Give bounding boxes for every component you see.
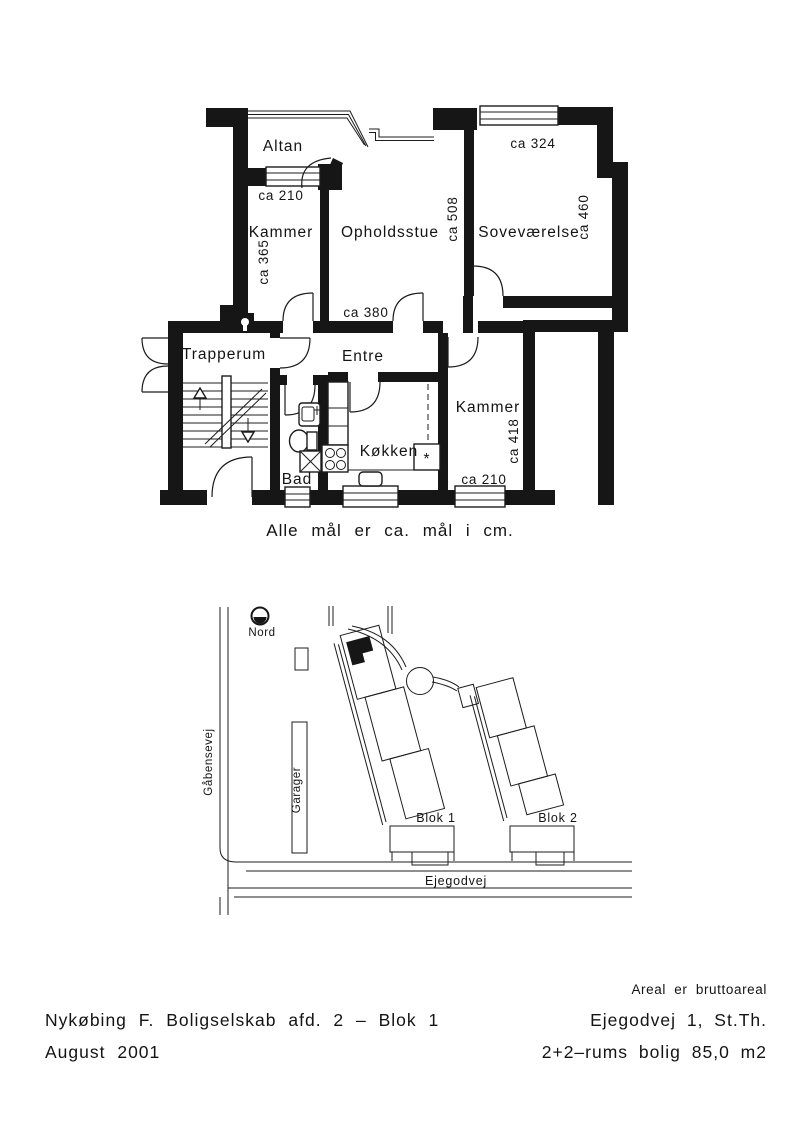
drawing-date: August 2001 <box>45 1042 160 1063</box>
dim-opholdsstue-width: ca 380 <box>343 305 388 320</box>
dim-sovevaerelse-depth: ca 460 <box>576 194 591 239</box>
dim-kammer-lower-depth: ca 418 <box>506 418 521 463</box>
room-label-entre: Entre <box>342 348 384 365</box>
window-kammer-lower <box>455 486 505 507</box>
dim-sovevaerelse-width: ca 324 <box>510 136 555 151</box>
dim-kammer-upper-depth: ca 365 <box>256 239 271 284</box>
garages-label: Garager <box>291 767 303 813</box>
toilet-icon <box>290 430 318 452</box>
room-label-koekken: Køkken <box>360 443 419 460</box>
blok2-building <box>458 670 564 824</box>
door-apartment-entrance <box>280 338 310 368</box>
site-plan: Nord Gåbensevej Garager Blok 1 Blok 2 Ej… <box>203 606 632 915</box>
kitchen-fixtures: * <box>322 382 440 486</box>
door-neighbour-flat <box>142 338 168 392</box>
blok1-annex <box>295 648 308 670</box>
room-label-opholdsstue: Opholdsstue <box>341 224 439 241</box>
blok1-wing <box>390 826 454 852</box>
street-label-west: Gåbensevej <box>203 728 215 795</box>
blok1-porch <box>412 852 448 865</box>
room-label-sovevaerelse: Soveværelse <box>478 224 579 241</box>
kitchen-sink-icon <box>359 472 382 486</box>
stove-icon <box>322 445 348 472</box>
door-building-entrance <box>212 457 252 497</box>
door-sovevaerelse <box>473 266 503 296</box>
room-label-altan: Altan <box>263 138 303 155</box>
plan-graphics: * Altan Kammer Opholdsstue Soveværelse T… <box>0 0 800 1131</box>
drawing-sheet: * Altan Kammer Opholdsstue Soveværelse T… <box>0 0 800 1131</box>
blok1-label: Blok 1 <box>416 811 456 825</box>
sink-icon <box>299 403 320 426</box>
door-kammer-lower <box>448 337 478 367</box>
apartment-type: 2+2–rums bolig 85,0 m2 <box>542 1042 767 1063</box>
roads <box>220 607 632 915</box>
address-line: Ejegodvej 1, St.Th. <box>590 1010 767 1031</box>
apartment-location-marker <box>346 636 375 665</box>
project-title: Nykøbing F. Boligselskab afd. 2 – Blok 1 <box>45 1010 439 1031</box>
window-koekken <box>343 486 398 507</box>
window-altan-kammer <box>266 167 320 186</box>
floor-plan: * Altan Kammer Opholdsstue Soveværelse T… <box>142 106 628 507</box>
blok2-label: Blok 2 <box>538 811 578 825</box>
room-label-trapperum: Trapperum <box>182 346 266 363</box>
compass-label: Nord <box>248 627 275 639</box>
stairs-icon <box>183 376 268 448</box>
door-kammer-upper <box>283 293 313 321</box>
window-bad <box>285 487 310 507</box>
stair-down-arrow <box>242 418 254 442</box>
blok2-porch <box>536 852 564 865</box>
door-koekken <box>350 382 380 412</box>
blok2-wing <box>510 826 574 852</box>
measurement-note: Alle mål er ca. mål i cm. <box>190 521 590 541</box>
fridge-symbol: * <box>423 451 430 468</box>
bathroom-fixtures <box>290 403 322 472</box>
street-label-south: Ejegodvej <box>425 874 487 888</box>
nord-compass-icon <box>252 608 269 625</box>
dim-kammer-lower-width: ca 210 <box>461 472 506 487</box>
room-label-kammer-upper: Kammer <box>249 224 314 241</box>
dim-kammer-upper-width: ca 210 <box>258 188 303 203</box>
door-opholdsstue <box>393 293 423 321</box>
window-sovevaerelse <box>480 106 558 125</box>
room-label-bad: Bad <box>282 471 313 488</box>
area-note: Areal er bruttoareal <box>631 982 767 997</box>
dim-opholdsstue-depth: ca 508 <box>445 196 460 241</box>
blok1-building <box>332 621 444 825</box>
room-label-kammer-lower: Kammer <box>456 399 521 416</box>
shower-icon <box>300 451 321 472</box>
